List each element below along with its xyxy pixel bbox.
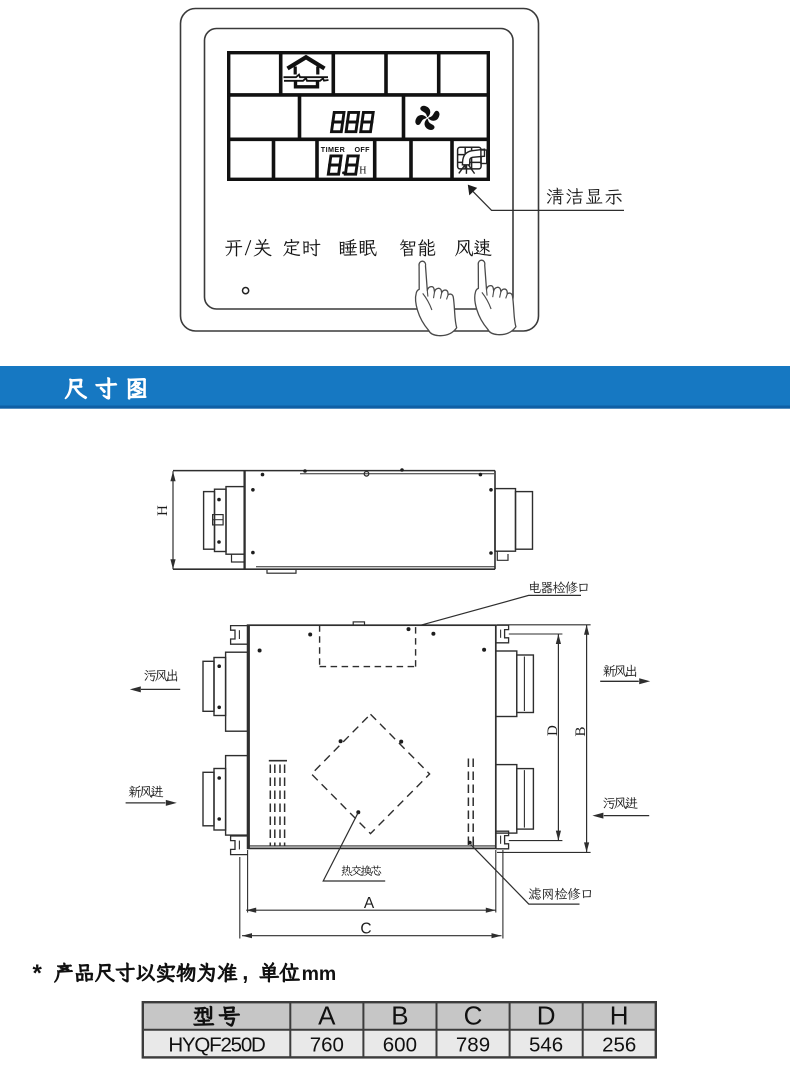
- svg-text:546: 546: [529, 1033, 563, 1056]
- svg-text:789: 789: [456, 1033, 490, 1056]
- svg-text:C: C: [360, 920, 371, 937]
- svg-text:D: D: [537, 1000, 556, 1030]
- svg-text:,: ,: [242, 960, 248, 985]
- svg-text:H: H: [610, 1000, 629, 1030]
- svg-text:H: H: [359, 165, 366, 176]
- svg-text:C: C: [464, 1000, 483, 1030]
- svg-text:*: *: [33, 960, 43, 987]
- svg-text:TIMER: TIMER: [321, 145, 346, 154]
- svg-text:H: H: [155, 505, 171, 516]
- svg-text:mm: mm: [302, 963, 337, 985]
- svg-text:A: A: [364, 895, 375, 912]
- svg-text:600: 600: [383, 1033, 417, 1056]
- svg-text:B: B: [391, 1000, 408, 1030]
- svg-text:OFF: OFF: [355, 145, 371, 154]
- svg-text:256: 256: [602, 1033, 636, 1056]
- svg-text:A: A: [318, 1000, 336, 1030]
- svg-text:760: 760: [310, 1033, 344, 1056]
- svg-text:HYQF250D: HYQF250D: [168, 1033, 265, 1056]
- svg-text:B: B: [573, 726, 589, 736]
- svg-text:D: D: [545, 725, 561, 736]
